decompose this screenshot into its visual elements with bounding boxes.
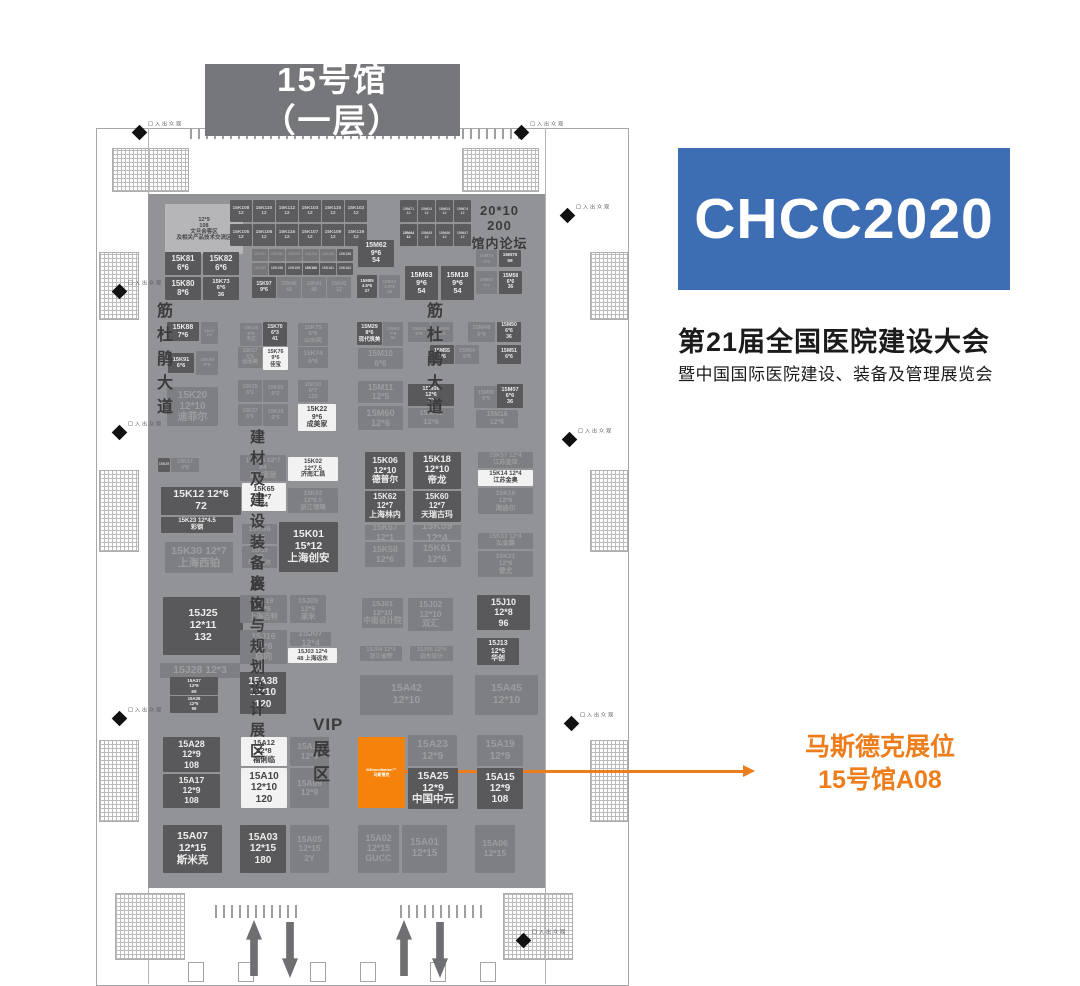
booth-15K109: 15K10912 (322, 224, 344, 246)
booth-15M70: 15M7059 (499, 250, 521, 267)
booth-15A06: 15A0612*15 (475, 825, 515, 873)
booth-15K87: 15K876*6 (201, 322, 218, 344)
booth-15K75: 15K756*6山水间 (298, 323, 328, 346)
stair-block (462, 148, 539, 192)
booth-15J07: 15J07 12*4 (290, 632, 331, 646)
booth-15M62: 15M629*654 (358, 240, 394, 267)
booth-15A45: 15A4512*10 (475, 675, 538, 715)
booth-callout: 马斯德克展位 15号馆A08 (755, 731, 1005, 796)
booth-15M60: 15M6012*6 (358, 406, 403, 430)
booth-15A37: 15A3712*669 (170, 677, 218, 695)
stair-block (112, 148, 189, 192)
booth-15K67: 15K67 12*1 (365, 525, 405, 540)
booth-15K160: 15K160 (303, 263, 319, 275)
booth-15K58: 15K5812*6 (365, 542, 405, 567)
booth-15M57: 15M577*7 (476, 271, 497, 294)
grill (400, 905, 483, 918)
booth-15K162: 15K162 (337, 263, 353, 275)
booth-15A10: 15A1012*10120 (241, 768, 287, 808)
zone-label: 咨询与规划设计展区 (250, 572, 266, 761)
booth-15J09: 15J0912*6莱米 (290, 595, 326, 623)
booth-15K152: 15K152 (269, 249, 285, 261)
booth-15K73: 15K736*636 (203, 277, 239, 300)
booth-15A07: 15A0712*15斯米克 (163, 825, 222, 873)
booth-15M63: 15M639*654 (405, 266, 438, 300)
booth-15J05: 15J05 12*4远东设计 (410, 646, 453, 661)
booth-15A19: 15A1912*9 (477, 735, 523, 766)
booth-15K159: 15K159 (286, 263, 302, 275)
door-notch (360, 962, 376, 982)
booth-15M50: 15M506*636 (497, 322, 521, 342)
booth-15M15: 15M154.5*628 (379, 275, 400, 298)
booth-15K42: 15K4212 (327, 277, 351, 298)
booth-15K61: 15K6112*6 (413, 542, 461, 567)
booth-15J04: 15J04 12*4浙江省院 (360, 646, 402, 661)
booth-15A15: 15A1512*9108 (477, 768, 523, 809)
entrance-label: 观众出入口 (127, 421, 162, 427)
booth-15M54: 15M546*6 (455, 345, 479, 364)
booth-15M73: 15M732*6 (476, 250, 497, 267)
chcc-logo: CHCC2020 (678, 148, 1010, 290)
booth-15K27: 15K276*6创而美 (238, 347, 262, 368)
booth-15M08: 15M086*9 (474, 386, 498, 408)
booth-15M46: 15M4612 (436, 224, 453, 246)
booth-15K18: 15K1812*10帝龙 (413, 452, 461, 489)
grill (215, 905, 297, 918)
booth-15A02: 15A0212*15GUCC (358, 825, 399, 873)
booth-15K23: 15K23 12*4.5彩钢 (161, 517, 233, 533)
booth-15K31: 15K3112*6雷尤 (478, 551, 533, 577)
entrance-label: 观众出入口 (531, 929, 566, 935)
booth-15K02: 15K0212*7.5济南汇昌 (288, 457, 338, 481)
entrance-label: 观众出入口 (575, 204, 610, 210)
booth-15K22: 15K229*6成美家 (298, 404, 336, 431)
stair-block (503, 893, 573, 960)
booth-15K50: 15K506*7120 (298, 380, 328, 402)
booth-15K57: 15K57 12*4江苏金亚 (478, 452, 533, 468)
booth-15K82: 15K826*6 (203, 252, 239, 275)
booth-15M01: 15M017*662 (383, 322, 403, 346)
booth-15K107: 15K10712 (299, 224, 321, 246)
booth-15M44: 15M4412 (400, 224, 417, 246)
booth-15K37: 15K376*6 (238, 404, 262, 426)
booth-15K116: 15K11612 (276, 224, 298, 246)
booth-15A23: 15A2312*9 (408, 735, 457, 766)
booth-15K106: 15K10612 (253, 224, 275, 246)
booth-15J02: 15J0212*10双汇 (408, 598, 453, 631)
hall-title-line1: 15号馆 (277, 59, 388, 100)
booth-15J28: 15J28 12*3 (160, 663, 240, 678)
booth-15J25: 15J2512*11132 (163, 597, 243, 655)
booth-15M51: 15M516*6 (497, 345, 521, 364)
booth-15K01: 15K0115*12上海创安 (279, 522, 338, 572)
booth-15J01: 15J0112*10中南设计院 (362, 598, 403, 628)
stair-block (590, 252, 628, 320)
booth-MDmedilation™: MDmedilation™马斯德克 (358, 737, 405, 808)
booth-15K151: 15K151 (252, 249, 268, 261)
zone-label: 20*10 200 馆内论坛 (452, 203, 547, 252)
booth-15K161: 15K161 (320, 263, 336, 275)
booth-15K16: 15K1612*6海迪尔 (478, 488, 533, 514)
booth-15K60: 15K6012*7天瑞古玛 (413, 491, 461, 522)
booth-15K110: 15K11012 (253, 200, 275, 222)
booth-15M45: 15M4512 (418, 224, 435, 246)
booth-15K103: 15K10312 (299, 200, 321, 222)
booth-15K59: 15K59 12*4 (413, 525, 461, 540)
booth-15M71: 15M7112 (400, 200, 417, 222)
stair-block (590, 740, 628, 822)
booth-15M58: 15M586*636 (499, 271, 522, 294)
callout-arrow-head (743, 765, 755, 777)
booth-15K17: 15K174*6 (171, 458, 199, 472)
entrance-label: 观众出入口 (147, 121, 182, 127)
booth-15A25: 15A2512*9中国中元 (408, 768, 458, 809)
booth-15K102: 15K10212 (345, 200, 367, 222)
booth-15K97: 15K979*6 (252, 277, 276, 298)
booth-15M13: 15M1312 (436, 200, 453, 222)
stair-block (590, 470, 628, 552)
hall-title-box: 15号馆 （一层） (205, 64, 460, 136)
booth-15K105: 15K10512 (230, 224, 252, 246)
entrance-label: 观众出入口 (577, 428, 612, 434)
hall-title-line2: （一层） (263, 100, 403, 141)
booth-15A05: 15A0512*152Y (290, 825, 329, 873)
door-notch (480, 962, 496, 982)
stair-block (99, 740, 139, 822)
floorplan-canvas: 15号馆 （一层） CHCC2020 第21届全国医院建设大会 暨中国国际医院建… (0, 0, 1080, 986)
booth-15K158: 15K158 (269, 263, 285, 275)
booth-15K33: 15K33 12*4弘金霖 (478, 533, 533, 549)
booth-15K74: 15K746*6 (298, 347, 328, 368)
booth-15J03: 15J03 12*448 上海远东 (288, 648, 337, 663)
booth-15A17: 15A1712*9108 (163, 774, 220, 808)
booth-15K154: 15K154 (303, 249, 319, 261)
booth-15M18: 15M189*654 (441, 266, 474, 300)
booth-15K41: 15K4148 (302, 277, 326, 298)
booth-15M10: 15M106*6 (358, 348, 403, 369)
corridor-line-right (545, 128, 546, 984)
zone-label: 筋杜鹃大道 (157, 297, 176, 417)
entrance-label: 观众出入口 (579, 712, 614, 718)
entrance-label: 观众出入口 (127, 707, 162, 713)
booth-15M07: 15M076*636 (497, 384, 523, 408)
stair-block (115, 893, 185, 960)
booth-15K55: 15K556*2 (263, 380, 288, 402)
booth-15K157: 15K157 (252, 263, 268, 275)
entrance-label: 观众出入口 (127, 280, 162, 286)
booth-15J10: 15J1012*896 (477, 595, 530, 630)
booth-15M11: 15M1112*5 (358, 381, 403, 403)
booth-15K81: 15K816*6 (165, 252, 201, 275)
booth-callout-line1: 马斯德克展位 (755, 731, 1005, 764)
booth-15K26: 15K266*6禾正 (240, 323, 262, 346)
booth-15K06: 15K0612*10德普尔 (365, 452, 405, 489)
booth-15K156: 15K156 (337, 249, 353, 261)
booth-15K70: 15K706*341 (263, 322, 287, 346)
booth-15M29: 15M298*6现代筑美 (357, 322, 382, 345)
door-notch (310, 962, 326, 982)
booth-15K115: 15K11512 (322, 200, 344, 222)
stair-block (99, 470, 139, 552)
booth-15K25: 15K25 (158, 458, 170, 472)
booth-15K30: 15K30 12*7上海西铂 (165, 542, 233, 573)
booth-15A28: 15A2812*9108 (163, 737, 220, 772)
event-title: 第21届全国医院建设大会 (678, 320, 1058, 359)
booth-15M05: 15M054.5*627 (357, 275, 377, 298)
booth-15K35: 15K356*2 (238, 380, 262, 402)
zone-label: 筋杜鹃大道 (427, 297, 446, 417)
booth-15A03: 15A0312*15180 (240, 825, 286, 873)
booth-15K153: 15K153 (286, 249, 302, 261)
booth-15K40: 15K4041 (277, 277, 301, 298)
booth-15J13: 15J1312*6华创 (477, 638, 519, 665)
booth-15K12: 15K12 12*672 (161, 487, 241, 515)
booth-15A36: 15A3612*559 (170, 696, 218, 713)
zone-label: VIP展区 (313, 715, 343, 785)
door-notch (188, 962, 204, 982)
booth-15M16: 15M1612*6 (476, 410, 518, 428)
booth-15K155: 15K155 (320, 249, 336, 261)
booth-15K112: 15K11212 (276, 200, 298, 222)
event-subtitle: 暨中国国际医院建设、装备及管理展览会 (678, 360, 1058, 385)
booth-15K14: 15K14 12*4江苏金奥 (478, 470, 533, 486)
booth-callout-line2: 15号馆A08 (755, 764, 1005, 797)
booth-15K90: 15K909*6 (196, 351, 218, 375)
booth-15K03: 15K0312*6.5浙江领琦 (288, 488, 338, 513)
chcc-logo-text: CHCC2020 (694, 186, 993, 252)
entrance-label: 观众出入口 (529, 121, 564, 127)
booth-15K62: 15K6212*7上海林内 (365, 491, 405, 522)
booth-15M48: 15M486*6 (468, 322, 495, 342)
booth-15A42: 15A4212*10 (360, 675, 453, 715)
booth-15A01: 15A0112*15 (402, 825, 447, 873)
booth-15K108: 15K10812 (230, 200, 252, 222)
booth-15K76: 15K769*6佳宝 (263, 347, 288, 370)
booth-15M12: 15M1212 (418, 200, 435, 222)
booth-15K38: 15K386*5 (263, 404, 288, 426)
